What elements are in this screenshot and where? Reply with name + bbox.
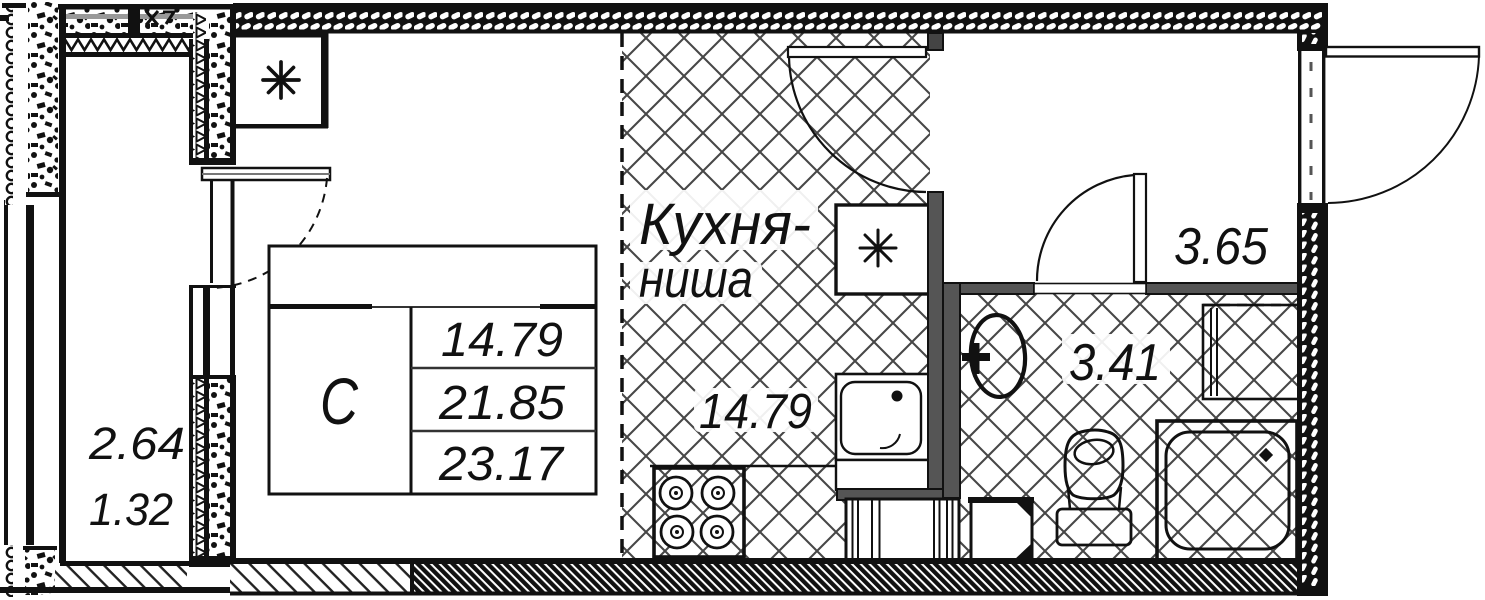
svg-text:14.79: 14.79 xyxy=(699,385,812,439)
svg-text:3.41: 3.41 xyxy=(1069,334,1161,392)
svg-text:1.32: 1.32 xyxy=(89,484,173,535)
svg-text:23.17: 23.17 xyxy=(438,438,565,491)
svg-text:21.85: 21.85 xyxy=(438,377,565,430)
svg-text:Кухня-: Кухня- xyxy=(639,192,811,257)
svg-text:14.79: 14.79 xyxy=(441,314,563,367)
svg-text:C: C xyxy=(320,364,359,438)
svg-text:3.65: 3.65 xyxy=(1174,218,1269,276)
svg-text:ниша: ниша xyxy=(639,250,753,309)
svg-text:2.64: 2.64 xyxy=(88,418,185,469)
